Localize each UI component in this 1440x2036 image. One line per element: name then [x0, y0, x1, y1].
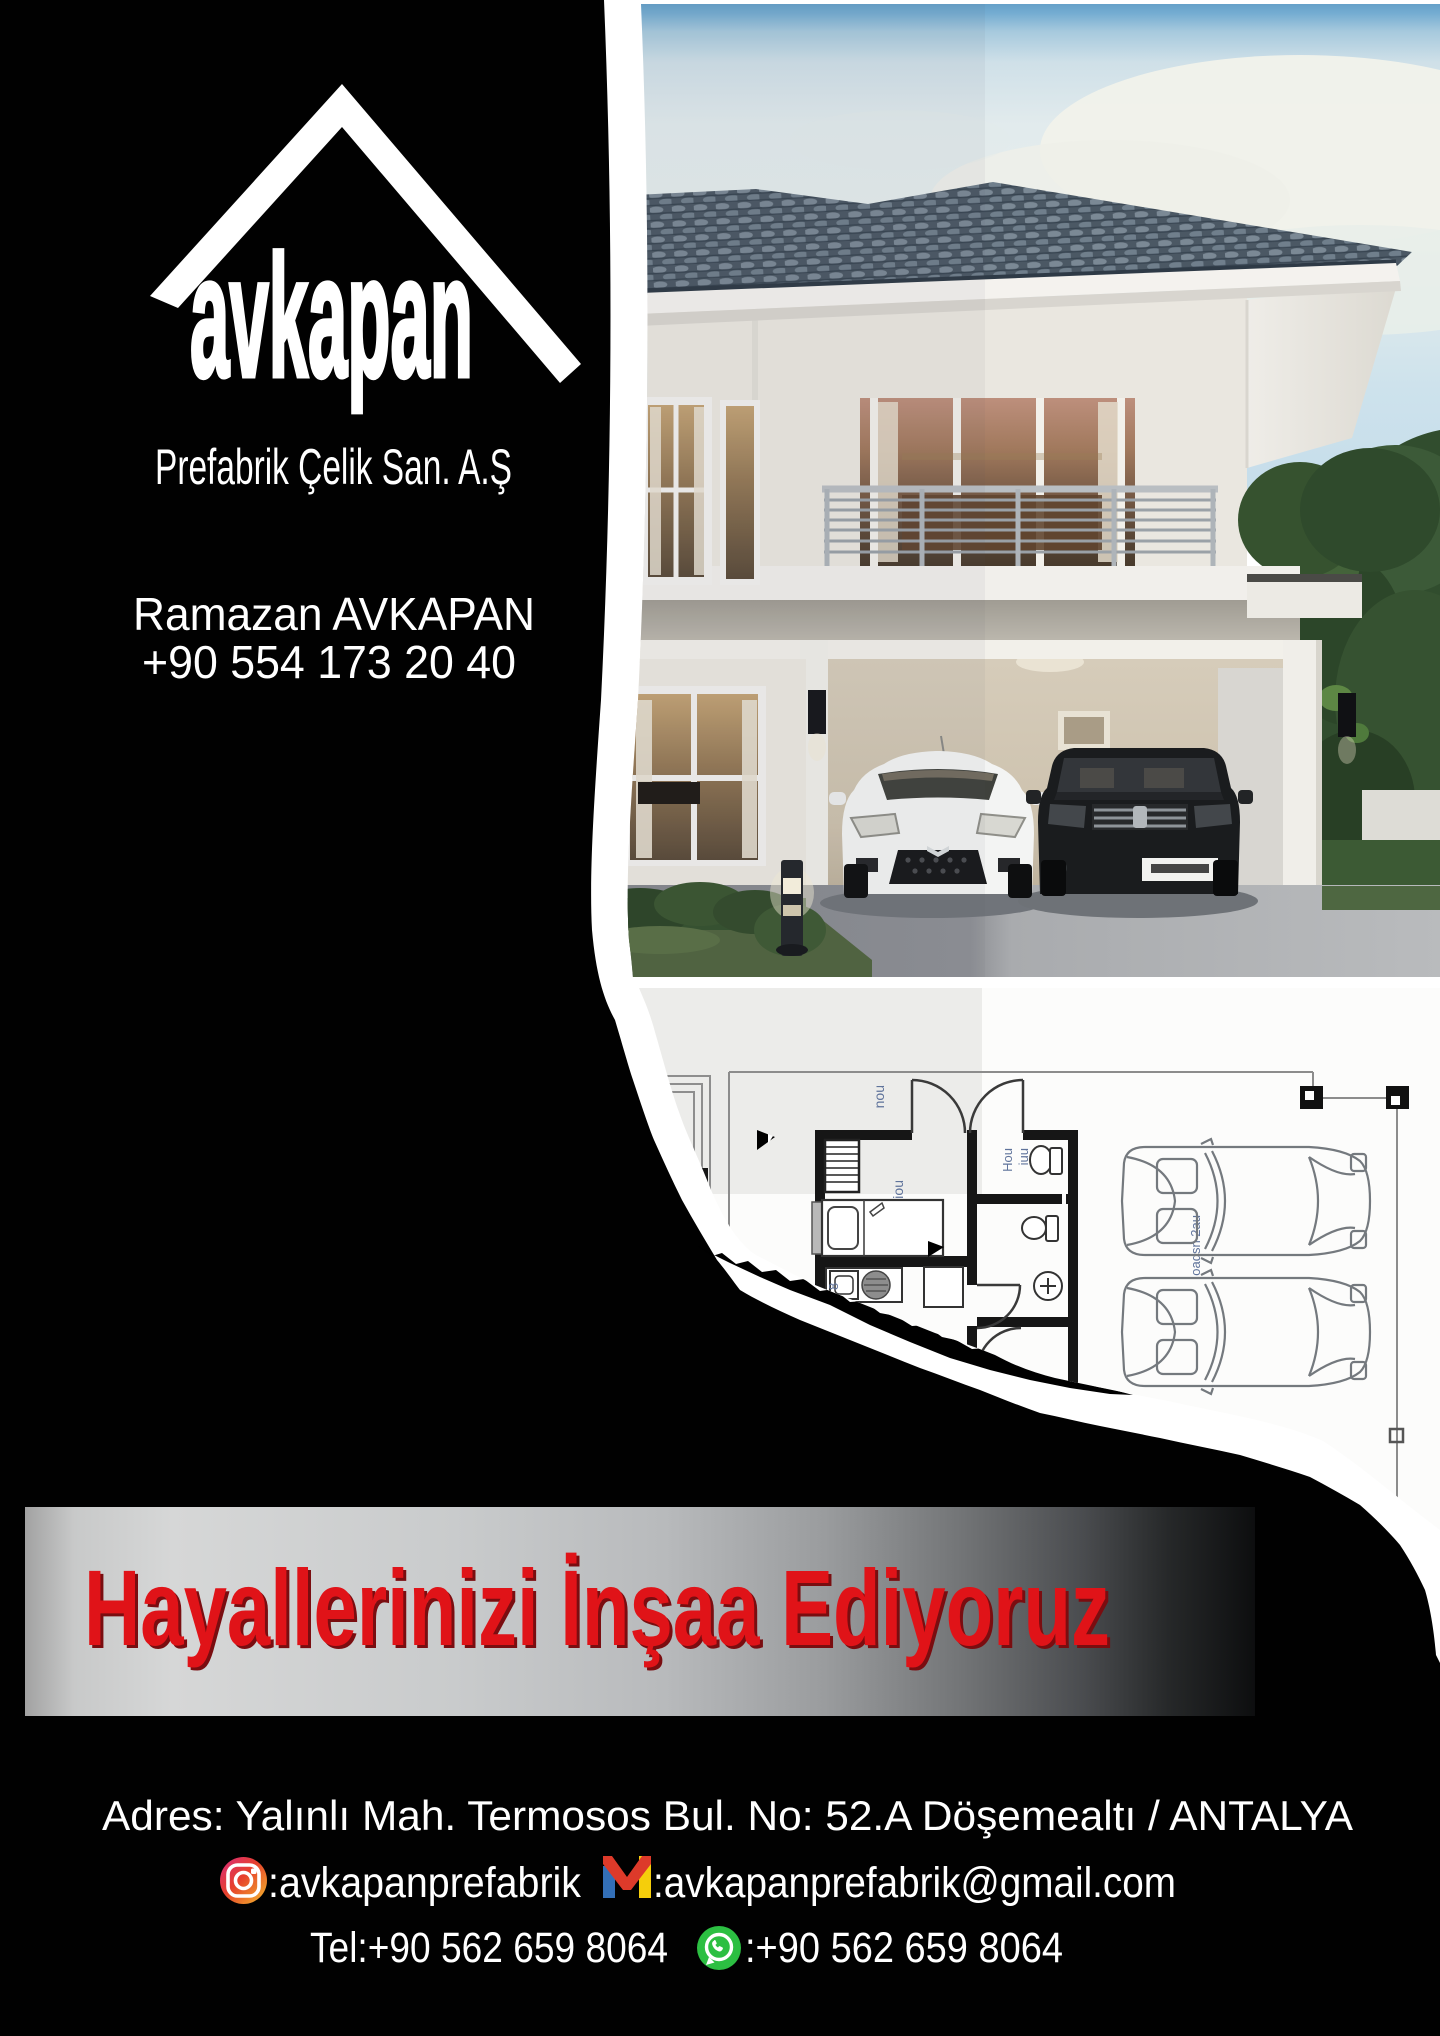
svg-text:Tel:+90 562 659 8064: Tel:+90 562 659 8064 [310, 1924, 668, 1972]
svg-text:avkapan: avkapan [190, 219, 473, 413]
svg-text:Hou: Hou [1000, 1148, 1015, 1172]
svg-text:8: 8 [826, 1283, 841, 1290]
svg-text::avkapanprefabrik: :avkapanprefabrik [268, 1859, 581, 1907]
svg-text::+90 562 659 8064: :+90 562 659 8064 [745, 1924, 1063, 1972]
svg-text:iuu: iuu [1016, 1148, 1031, 1165]
svg-text:oadsn 2au: oadsn 2au [1188, 1215, 1203, 1276]
svg-text:Adres: Yalınlı Mah. Termosos B: Adres: Yalınlı Mah. Termosos Bul. No: 52… [102, 1792, 1353, 1839]
svg-text:Hayallerinizi İnşaa Ediyoruz: Hayallerinizi İnşaa Ediyoruz [84, 1547, 1110, 1668]
svg-text:Ramazan AVKAPAN: Ramazan AVKAPAN [133, 588, 535, 640]
svg-text:Prefabrik Çelik San. A.Ş: Prefabrik Çelik San. A.Ş [155, 439, 512, 495]
svg-text::avkapanprefabrik@gmail.com: :avkapanprefabrik@gmail.com [653, 1859, 1176, 1907]
svg-text:iou: iou [890, 1180, 906, 1199]
svg-text:+90 554 173 20 40: +90 554 173 20 40 [142, 636, 516, 688]
svg-text:nou: nou [871, 1085, 887, 1108]
